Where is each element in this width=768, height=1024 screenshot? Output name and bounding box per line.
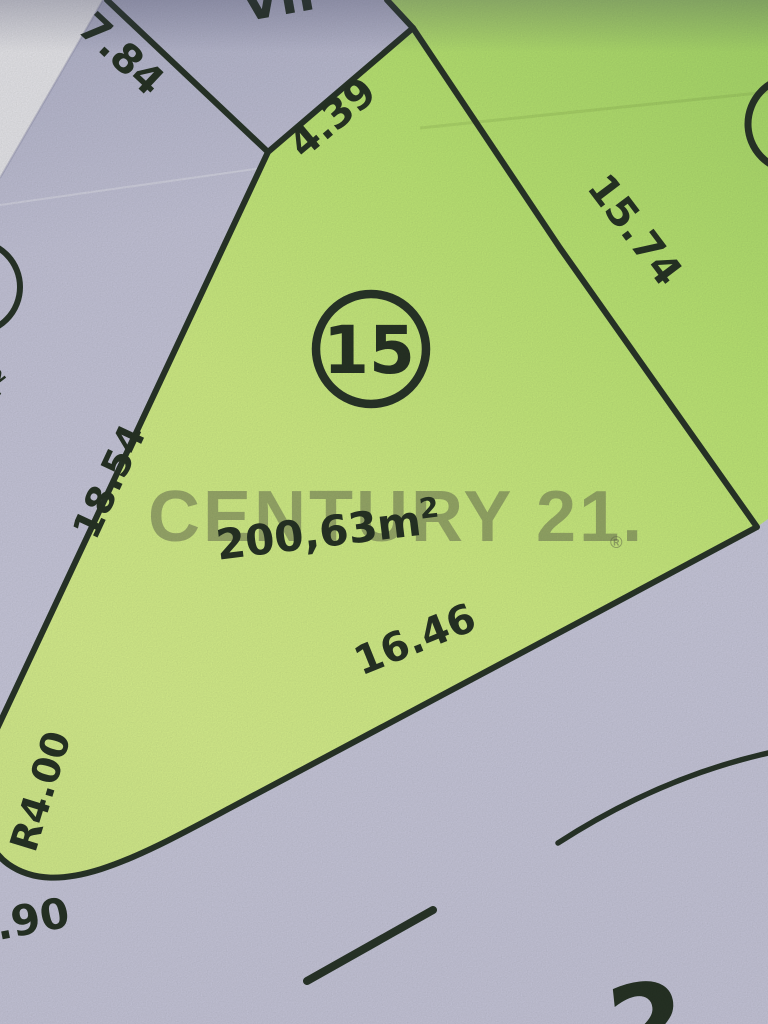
plot-plan-photo: CENTURY 21. ® 15 200,63m2 7.84 4.39 15.7…: [0, 0, 768, 1024]
paper-grain-texture: [0, 0, 768, 1024]
cadastral-map: CENTURY 21. ® 15 200,63m2 7.84 4.39 15.7…: [0, 0, 768, 1024]
top-edge-shadow: [0, 0, 768, 52]
